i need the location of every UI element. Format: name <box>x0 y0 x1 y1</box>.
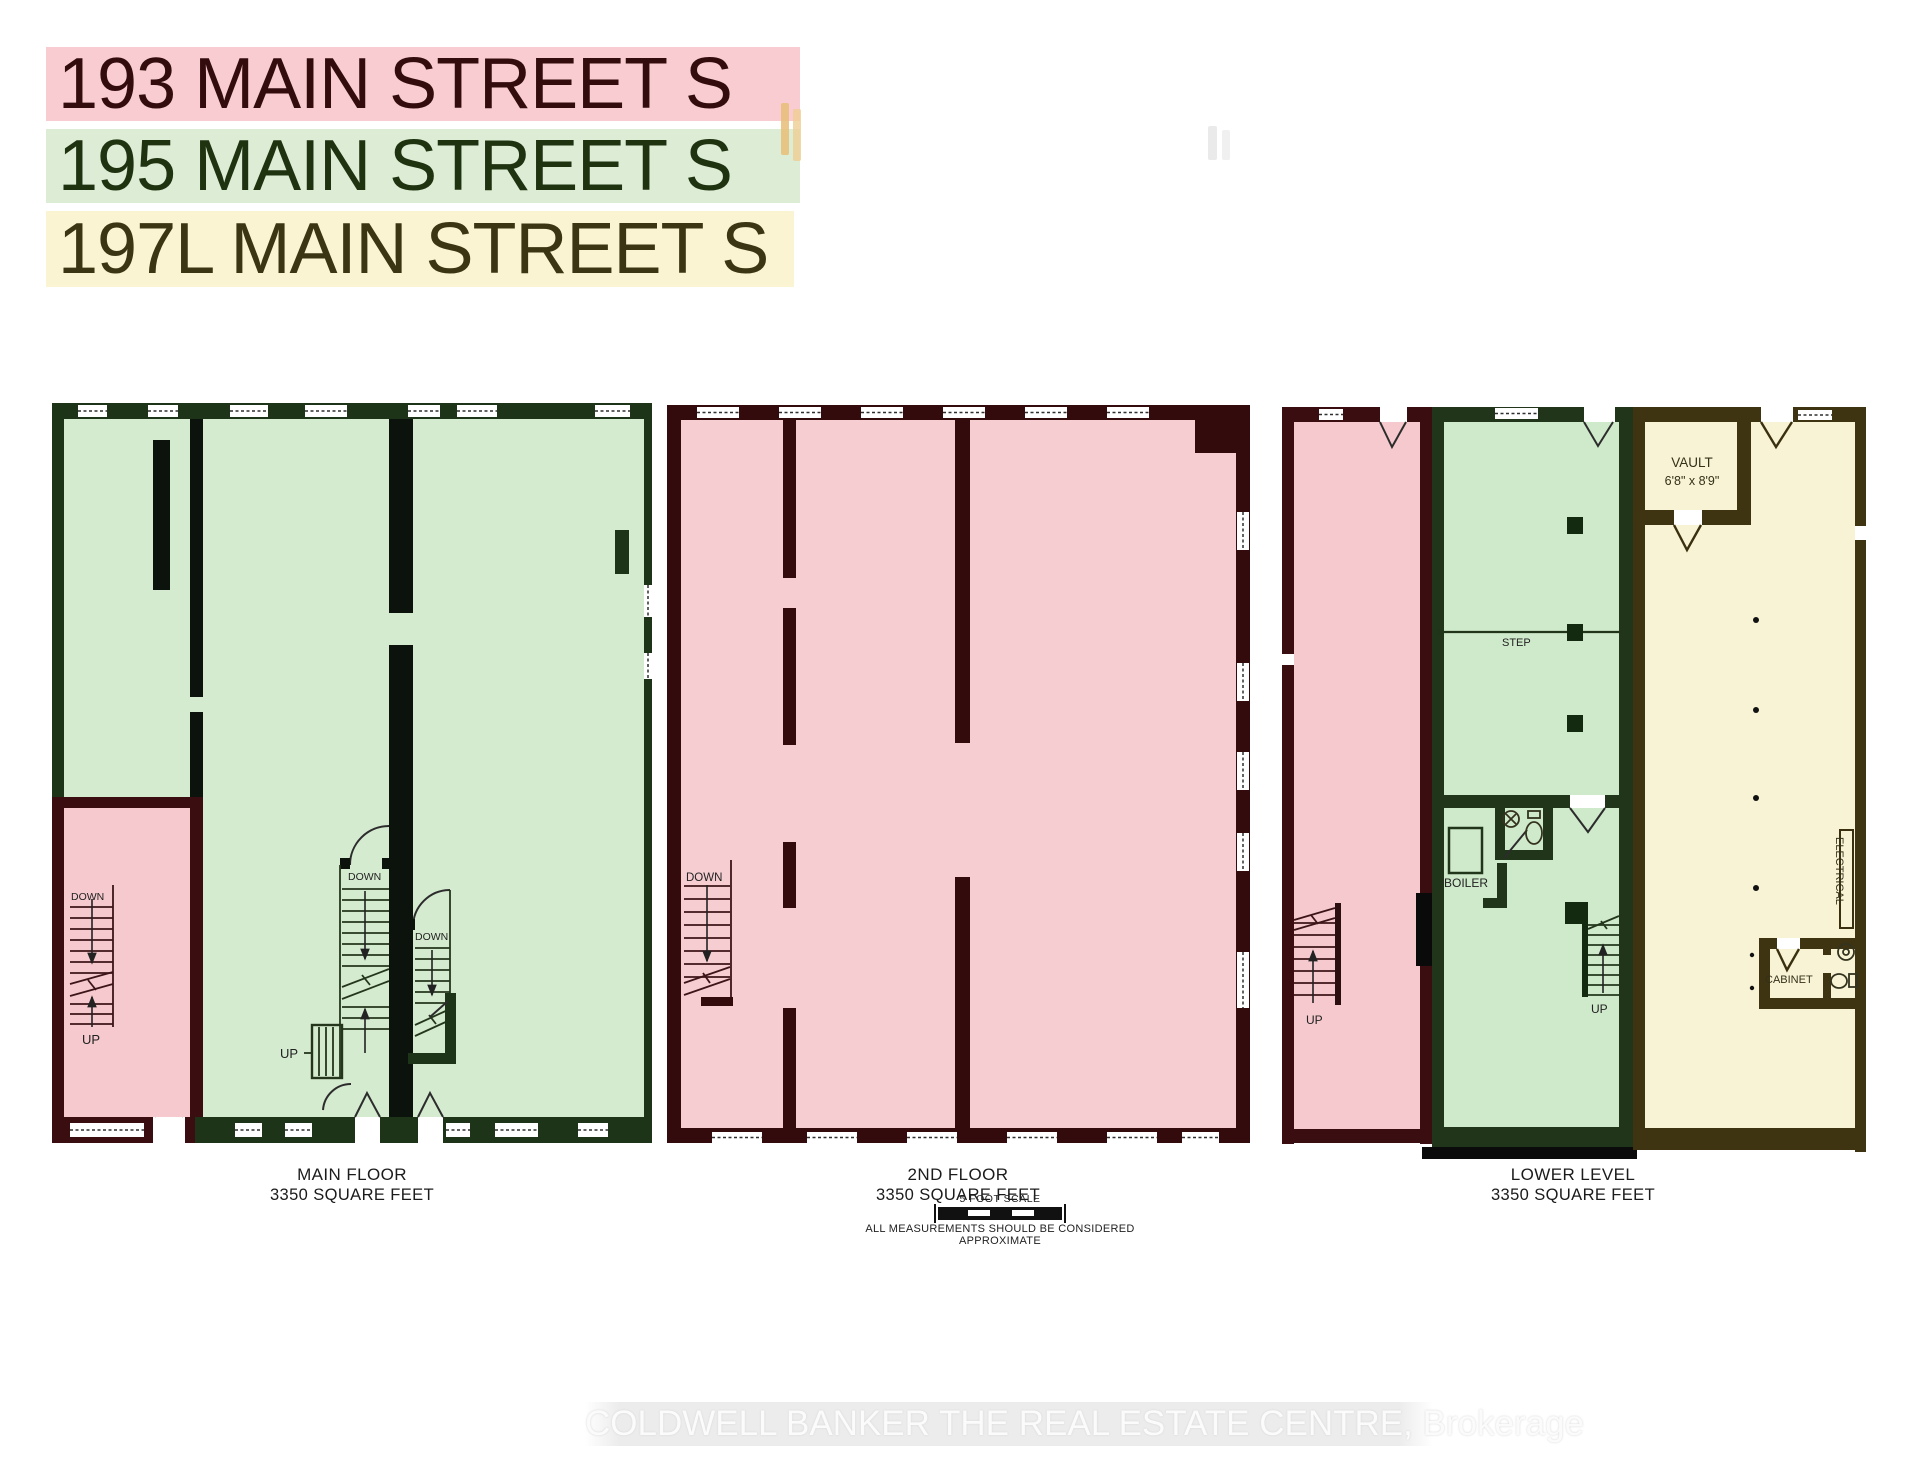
svg-text:DOWN: DOWN <box>71 891 104 903</box>
svg-text:UP: UP <box>280 1046 298 1061</box>
wall-segment <box>153 440 170 590</box>
electrical-label: ELECTRICAL <box>1833 837 1845 905</box>
pink-room <box>52 797 203 1117</box>
post <box>1567 517 1583 534</box>
wall-segment <box>389 645 413 1117</box>
vault-label: VAULT <box>1671 455 1713 470</box>
address-banner-197L: 197L MAIN STREET S <box>46 211 794 287</box>
scale-note: 5 FOOT SCALE ALL MEASUREMENTS SHOULD BE … <box>860 1193 1140 1247</box>
cabinet-label: CABINET <box>1765 974 1813 986</box>
second-floor-structure: DOWN <box>667 405 1250 1143</box>
scale-bar <box>938 1207 1062 1220</box>
floor-title: MAIN FLOOR <box>202 1164 502 1185</box>
wall-segment <box>190 419 203 697</box>
svg-text:UP: UP <box>1591 1002 1608 1016</box>
post <box>1567 715 1583 732</box>
post <box>1567 624 1583 641</box>
lower-pink-strip: UP <box>1282 407 1440 1144</box>
address-banner-195: 195 MAIN STREET S <box>46 129 800 203</box>
floor-title: 2ND FLOOR <box>808 1164 1108 1185</box>
scan-artifact <box>793 109 801 161</box>
svg-text:DOWN: DOWN <box>686 872 722 884</box>
scan-artifact <box>781 103 789 155</box>
brokerage-watermark: COLDWELL BANKER THE REAL ESTATE CENTRE, … <box>585 1402 1433 1446</box>
cabinet-room: CABINET <box>1759 938 1866 1009</box>
address-banner-193: 193 MAIN STREET S <box>46 47 800 121</box>
floor-plan-lower-level: UP STEP <box>1280 403 1866 1163</box>
wall-segment <box>190 712 203 797</box>
scale-title: 5 FOOT SCALE <box>860 1193 1140 1205</box>
lower-green-strip: STEP BOILER <box>1422 407 1637 1159</box>
floor-plan-2nd-floor: DOWN <box>667 405 1250 1143</box>
floor-area: 3350 SQUARE FEET <box>202 1185 502 1206</box>
scan-artifact <box>1222 130 1230 160</box>
svg-text:DOWN: DOWN <box>348 871 381 883</box>
scan-artifact <box>1208 126 1217 160</box>
caption-lower-level: LOWER LEVEL 3350 SQUARE FEET <box>1423 1164 1723 1206</box>
floor-area: 3350 SQUARE FEET <box>1423 1185 1723 1206</box>
floor-title: LOWER LEVEL <box>1423 1164 1723 1185</box>
floor-plan-main-floor: DOWN UP DOWN <box>52 403 652 1143</box>
wall-segment <box>389 419 413 613</box>
lower-yellow-strip: VAULT 6'8" x 8'9" ELECTRICAL <box>1633 407 1866 1152</box>
svg-text:DOWN: DOWN <box>415 931 448 943</box>
floorplan-sheet: 193 MAIN STREET S 195 MAIN STREET S 197L… <box>0 0 1920 1484</box>
svg-text:UP: UP <box>82 1032 100 1047</box>
boiler-label: BOILER <box>1444 876 1488 890</box>
vault-size-label: 6'8" x 8'9" <box>1665 474 1720 488</box>
step-label: STEP <box>1502 637 1531 649</box>
caption-main-floor: MAIN FLOOR 3350 SQUARE FEET <box>202 1164 502 1206</box>
svg-text:UP: UP <box>1306 1013 1323 1027</box>
scale-caption: ALL MEASUREMENTS SHOULD BE CONSIDERED AP… <box>860 1223 1140 1247</box>
main-floor-structure: DOWN UP DOWN <box>52 403 652 1143</box>
